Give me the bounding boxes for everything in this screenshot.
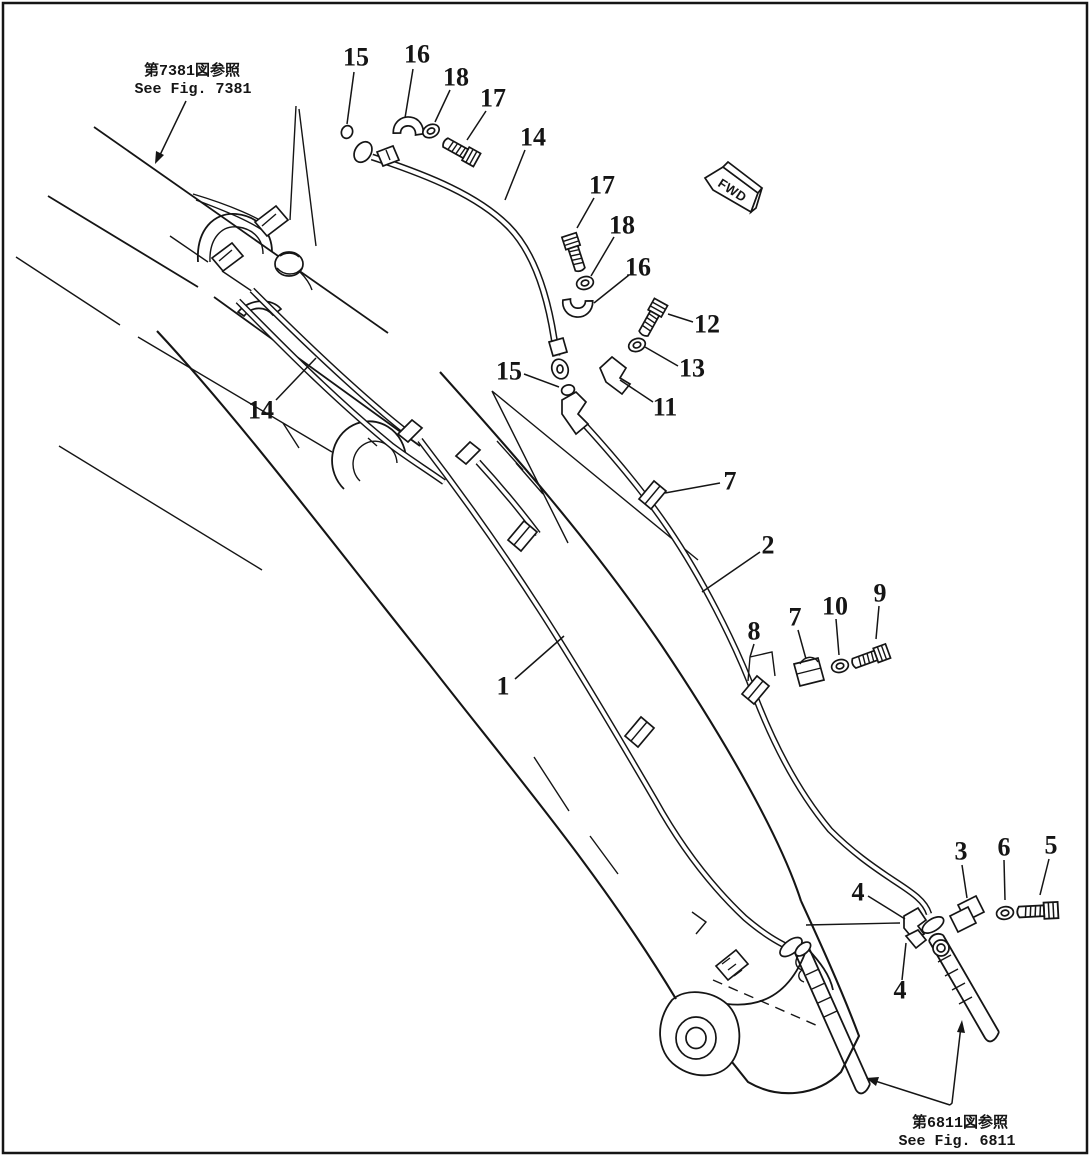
clamp-16a [393,114,427,141]
assembly-axis-line [806,923,900,925]
callout-label-2: 2 [762,531,775,560]
leader-line-17 [467,111,486,140]
ref-7381-en: See Fig. 7381 [134,81,251,98]
callout-label-17: 17 [480,84,506,113]
figure-border [3,3,1087,1153]
washer-18a [421,122,442,141]
leader-line-18 [435,90,450,122]
leader-line-12 [668,314,693,322]
hose-coupling-a [398,420,422,442]
callout-label-14: 14 [520,123,546,152]
foot-pin-hole [686,1028,706,1049]
pipe1-clamp-block-b [625,717,654,747]
boom-tip-assembly [193,194,538,534]
leader-line-1 [515,636,564,679]
lower-hoses [793,934,999,1094]
boom-structure [16,106,859,1093]
leader-line-7 [798,630,806,659]
boom-plate-edge [48,196,420,446]
washer-18b [575,275,595,292]
leader-line-2 [702,552,760,592]
clamp-7-loose [794,658,824,686]
callout-label-17: 17 [589,171,615,200]
callout-label-7: 7 [789,603,802,632]
callout-label-15: 15 [343,43,369,72]
foot-ear-curve [727,948,833,1005]
tip-cap [275,252,303,276]
callout-label-15: 15 [496,357,522,386]
fwd-flag: FWD [705,162,762,212]
callout-label-7: 7 [724,467,737,496]
bolt-17b [562,233,588,274]
hose-14-exploded [350,138,571,381]
callout-label-3: 3 [955,837,968,866]
callout-label-12: 12 [694,310,720,339]
tip-clamp-block-b [212,243,243,271]
exploded-parts [340,114,1059,1026]
callout-label-4: 4 [894,976,907,1005]
boom-plate-edge-2 [16,257,332,452]
pipe2-inlet-elbow [562,392,588,434]
hose14-banjo-bottom [549,357,571,381]
ref-6811-jp: 第6811図参照 [912,1113,1008,1132]
callout-label-4: 4 [852,878,865,907]
callout-label-5: 5 [1045,831,1058,860]
callout-label-11: 11 [653,393,678,422]
ref-7381-arrow [155,151,164,164]
tip-clamp-block-a [255,206,288,236]
leader-line-14 [505,150,525,200]
leader-line-6 [1004,860,1005,900]
leader-line-13 [645,347,678,366]
bolt-17a [440,135,480,166]
leader-line-7 [665,483,720,493]
clamp-16b [560,293,594,320]
foot-pin-boss [676,1017,716,1059]
callout-label-9: 9 [874,579,887,608]
oring-15a [340,124,355,140]
callout-label-16: 16 [625,253,651,282]
tip-inner-lines [170,236,262,298]
parts-diagram-figure: FWD 第7381図参照 See Fig. 7381 第6811図参照 See … [0,0,1090,1156]
callout-label-8: 8 [748,617,761,646]
hose14-banjo-top [350,138,375,165]
leader-line-5 [1040,859,1049,895]
bracket-8-lines [748,652,775,681]
edge-notch [692,912,706,934]
leader-line-16 [594,275,629,303]
leader-line-4 [868,896,905,919]
assembly-dash-line [713,980,818,1026]
boom-lower-line [59,446,262,570]
leader-line-4 [902,943,906,980]
callout-label-1: 1 [497,672,510,701]
leader-line-16 [405,69,413,118]
leader-line-17 [577,198,594,228]
breakout-boundary [290,106,316,246]
callout-label-18: 18 [443,63,469,92]
callout-label-18: 18 [609,211,635,240]
ref-6811-en: See Fig. 6811 [898,1133,1015,1150]
washer-10 [830,658,850,675]
leader-line-15 [524,374,559,387]
leader-line-14 [276,358,316,400]
callout-label-14: 14 [248,396,274,425]
bolt-5 [1017,902,1059,920]
washer-6 [996,905,1015,920]
callout-label-6: 6 [998,833,1011,862]
foot-lug [716,950,748,980]
pipe-1 [420,440,805,960]
pipe-2 [562,392,946,936]
leader-line-15 [347,72,354,124]
callout-label-13: 13 [679,354,705,383]
bolt-9 [850,644,891,671]
leader-line-10 [836,619,839,655]
bolt-12 [636,298,667,338]
elbow-11 [600,357,630,394]
ref-7381-jp: 第7381図参照 [144,61,240,80]
leader-line-9 [876,606,879,639]
parts-diagram-page: FWD 第7381図参照 See Fig. 7381 第6811図参照 See … [0,0,1090,1156]
callout-label-10: 10 [822,592,848,621]
washer-13 [627,336,647,354]
leader-line-3 [962,865,967,898]
hose-b-banjo [933,940,949,956]
leader-line-8 [750,644,754,657]
callout-label-16: 16 [404,40,430,69]
ref-6811-arrow-up [957,1020,965,1033]
ref-fig-7381: 第7381図参照 See Fig. 7381 [134,61,251,164]
hose-coupling-b [456,442,480,464]
leader-line-18 [591,237,614,276]
